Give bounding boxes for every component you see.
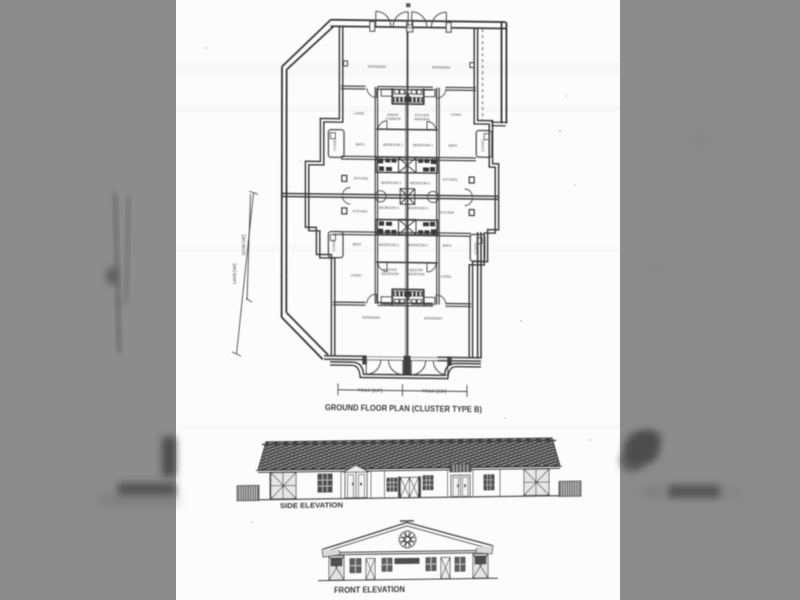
svg-text:LIVING: LIVING [354,112,365,116]
svg-text:VERANDAH: VERANDAH [368,65,387,69]
svg-text:VERANDAH: VERANDAH [424,316,443,320]
svg-text:CLOSET: CLOSET [481,139,485,152]
svg-text:FRONT ELEVATION: FRONT ELEVATION [334,585,405,595]
svg-text:BEDROOM 2: BEDROOM 2 [408,243,428,247]
svg-text:BATH: BATH [449,144,458,148]
svg-text:LIVING: LIVING [351,273,362,277]
svg-text:CLOSET: CLOSET [474,242,478,255]
svg-text:BEDROOM: BEDROOM [381,272,398,276]
svg-text:KITCHEN: KITCHEN [354,177,369,181]
svg-text:WASHING: WASHING [414,117,430,121]
svg-text:SIDE ELEVATION: SIDE ELEVATION [280,500,343,510]
svg-text:BATH: BATH [353,243,362,247]
svg-text:BEDROOM 1: BEDROOM 1 [413,143,433,147]
svg-text:BATH: BATH [356,143,365,147]
svg-text:LIVING: LIVING [441,275,452,279]
svg-text:BEDROOM 3: BEDROOM 3 [410,181,430,185]
svg-text:COMMON: COMMON [385,117,401,121]
svg-text:VERANDAH: VERANDAH [362,316,381,320]
svg-text:BEDROOM 3: BEDROOM 3 [408,206,428,210]
svg-text:KITCHEN: KITCHEN [353,210,368,214]
svg-text:14630 [48']: 14630 [48'] [232,263,237,284]
svg-text:BEDROOM 3: BEDROOM 3 [379,206,399,210]
svg-text:KITCHEN: KITCHEN [440,211,455,215]
svg-text:LIVING: LIVING [451,113,462,117]
svg-text:7010 [23']: 7010 [23'] [421,388,446,393]
svg-text:BEDROOM: BEDROOM [407,272,424,276]
svg-text:BATH: BATH [443,244,452,248]
svg-text:KITCHEN: KITCHEN [443,178,458,182]
svg-text:BEDROOM 3: BEDROOM 3 [381,181,401,185]
svg-text:CLOSET: CLOSET [333,138,337,151]
svg-text:BEDROOM 2: BEDROOM 2 [379,243,399,247]
svg-text:VERANDAH: VERANDAH [432,66,451,70]
svg-text:CLOSET: CLOSET [332,239,336,252]
svg-text:GROUND FLOOR PLAN (CLUSTER TYP: GROUND FLOOR PLAN (CLUSTER TYPE B) [325,402,482,414]
svg-text:7010 [23']: 7010 [23'] [358,388,383,393]
svg-text:10160 [40']: 10160 [40'] [241,235,246,256]
svg-text:BEDROOM 1: BEDROOM 1 [383,143,403,147]
